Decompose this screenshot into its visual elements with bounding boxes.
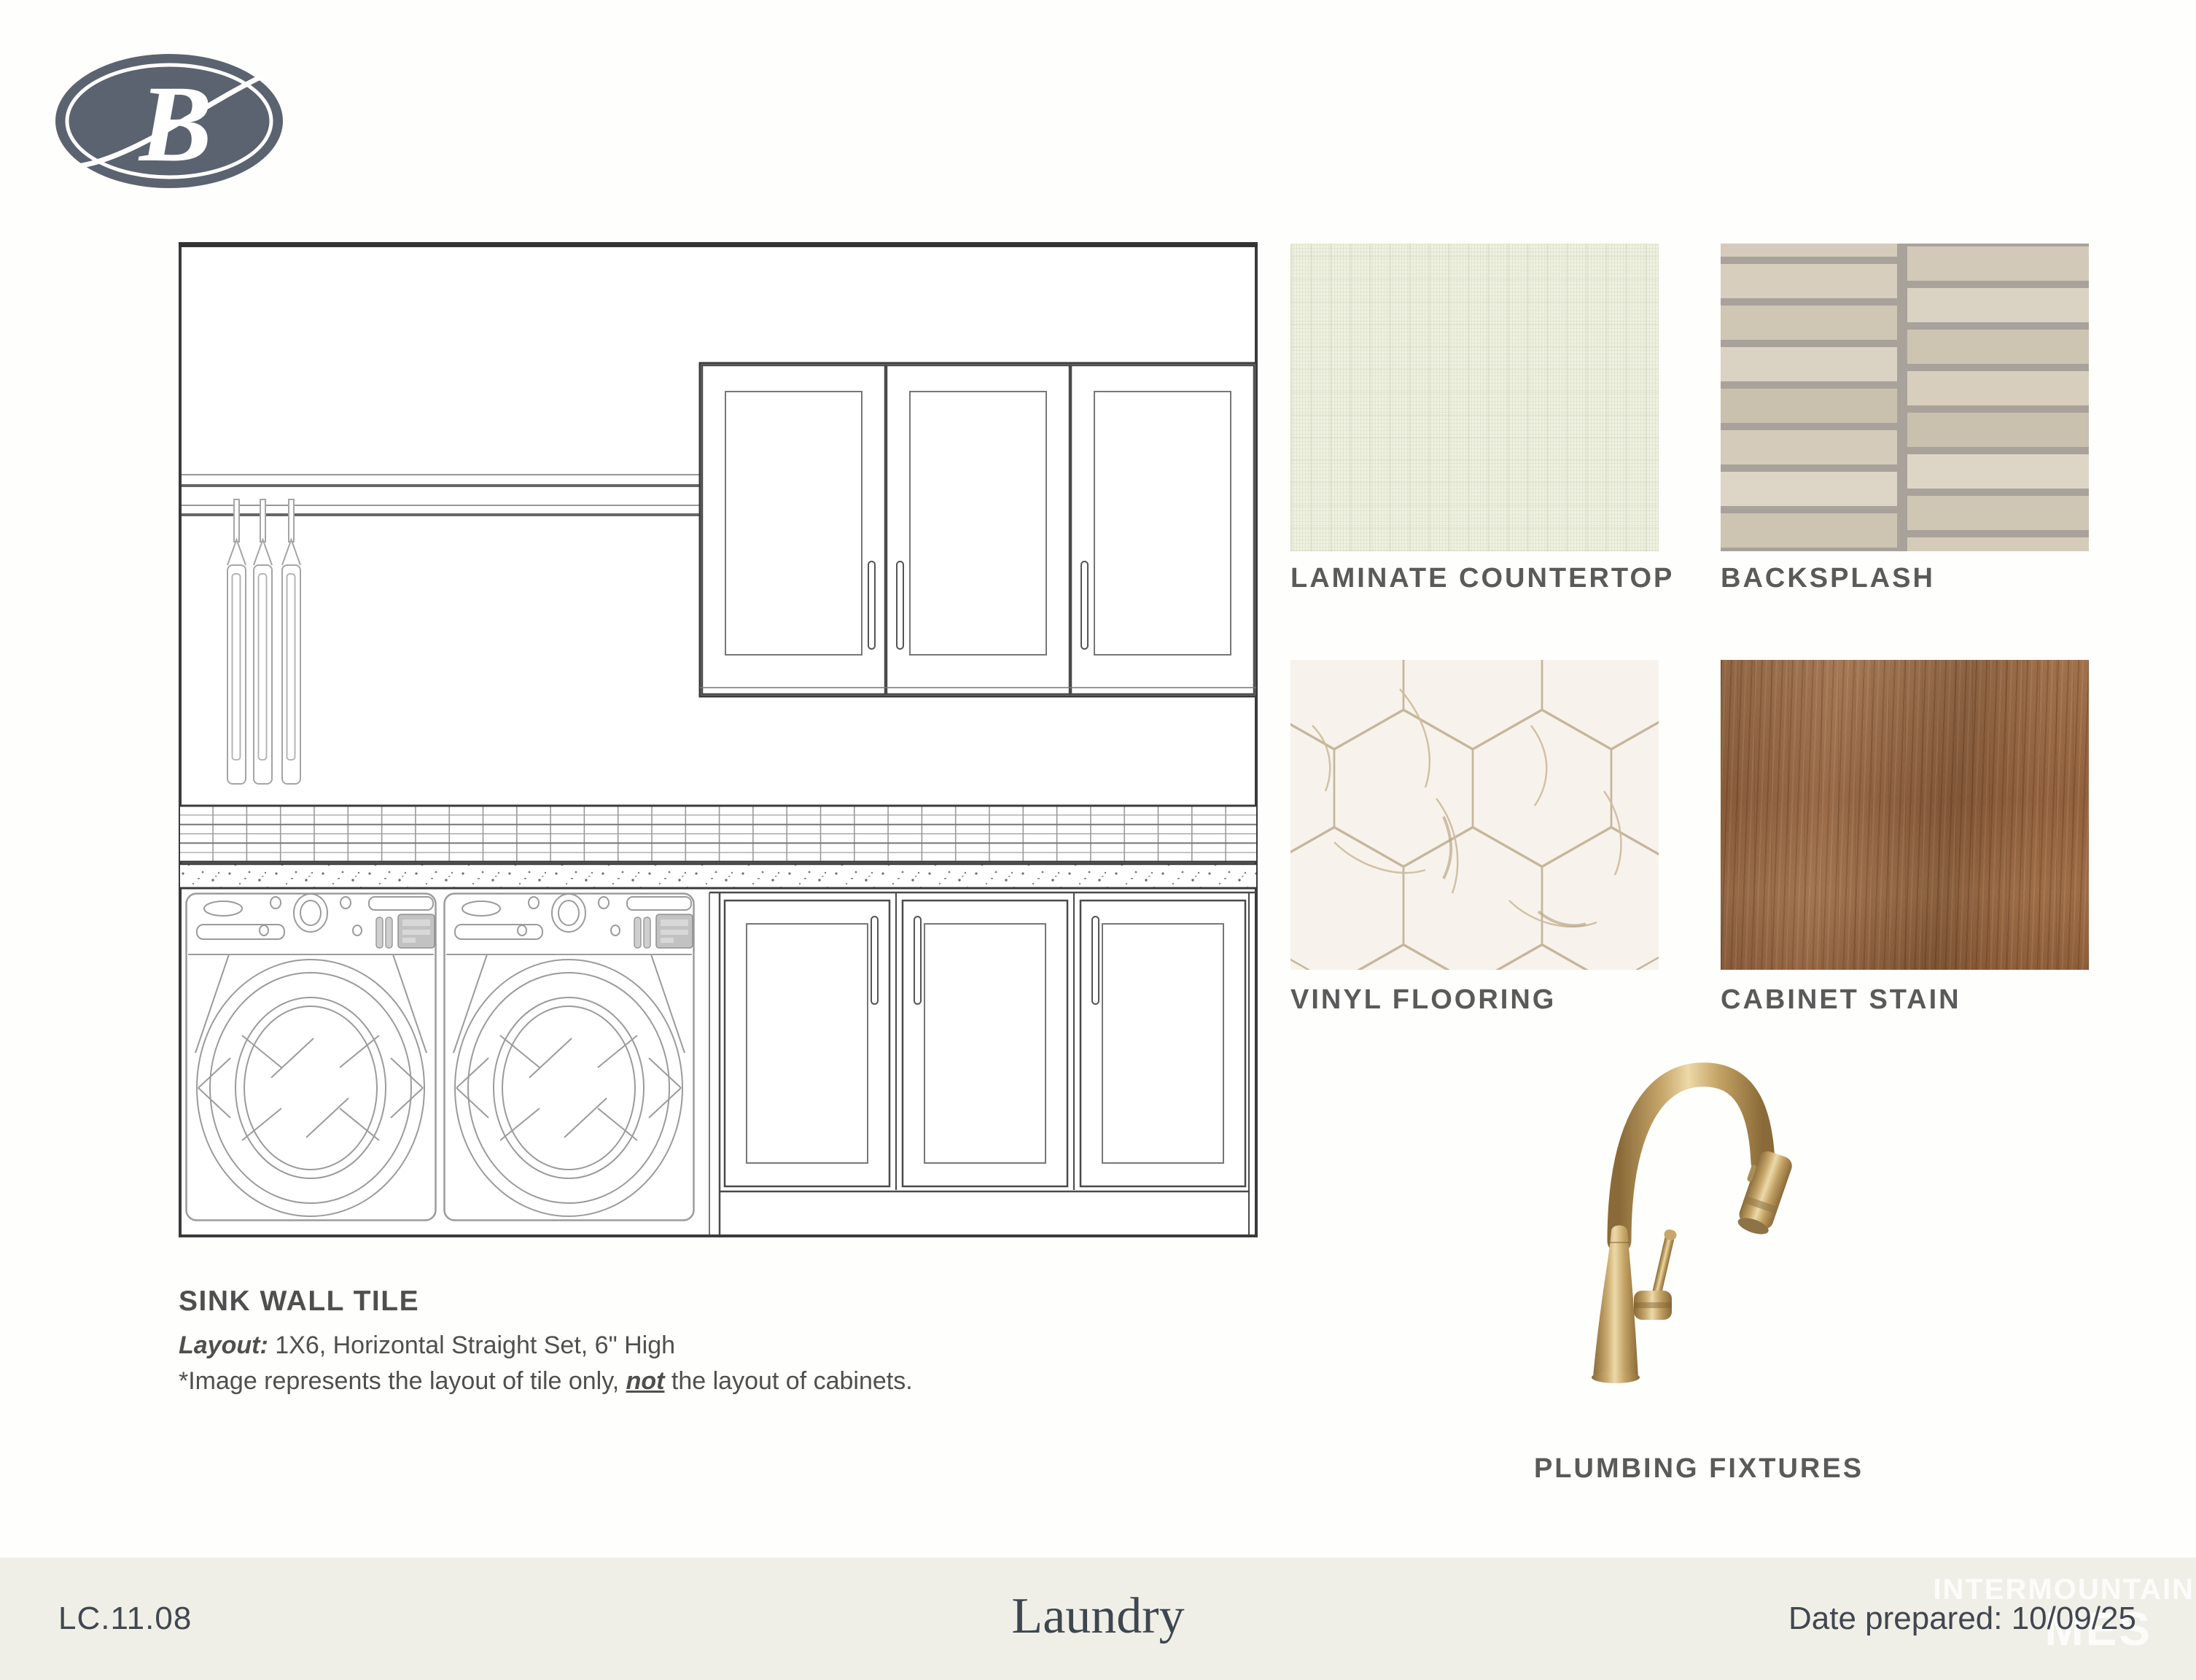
- faucet-image: [1520, 1059, 1885, 1401]
- faucet-sprayhead: [1731, 1148, 1794, 1238]
- faucet-handle: [1634, 1229, 1678, 1320]
- cabinet-stain-label: CABINET STAIN: [1721, 984, 1961, 1016]
- vinyl-flooring-label: VINYL FLOORING: [1290, 984, 1556, 1016]
- washer: [187, 894, 436, 1221]
- sheet-title: Laundry: [1011, 1587, 1184, 1646]
- footer-bar: INTERMOUNTAIN MES LC.11.08 Laundry Date …: [0, 1557, 2196, 1680]
- spec-sheet-page: B: [0, 0, 2196, 1680]
- dryer: [445, 894, 694, 1221]
- faucet-body: [1593, 1226, 1638, 1378]
- laminate-countertop-swatch: [1290, 244, 1659, 551]
- cabinet-stain-swatch: [1721, 660, 2089, 970]
- cabinet-handle: [1092, 917, 1099, 1004]
- cabinet-handle: [897, 561, 903, 649]
- vinyl-flooring-swatch: [1290, 660, 1659, 970]
- caption-note: *Image represents the layout of tile onl…: [179, 1364, 1214, 1399]
- tile-band: [179, 806, 1258, 862]
- cabinet-handle: [1081, 561, 1088, 649]
- plumbing-fixtures-label: PLUMBING FIXTURES: [1422, 1453, 1976, 1485]
- sheet-code: LC.11.08: [58, 1601, 192, 1637]
- backsplash-label: BACKSPLASH: [1721, 563, 1935, 594]
- countertop: [179, 864, 1258, 888]
- backsplash-swatch: [1721, 244, 2089, 551]
- laminate-countertop-label: LAMINATE COUNTERTOP: [1290, 563, 1674, 594]
- laundry-elevation-drawing: [179, 242, 1258, 1237]
- wall-cabinets: [700, 363, 1256, 696]
- hanging-rods: [227, 499, 300, 784]
- base-cabinets: [709, 892, 1256, 1234]
- caption-layout: Layout: 1X6, Horizontal Straight Set, 6"…: [179, 1328, 1214, 1364]
- cabinet-handle: [871, 917, 878, 1004]
- cabinet-handle: [914, 917, 921, 1004]
- caption-title: SINK WALL TILE: [179, 1286, 1214, 1318]
- cabinet-handle: [868, 561, 875, 649]
- logo-letter: B: [138, 63, 212, 184]
- drawing-caption: SINK WALL TILE Layout: 1X6, Horizontal S…: [179, 1286, 1214, 1400]
- date-prepared: Date prepared: 10/09/25: [1788, 1601, 2136, 1637]
- brand-logo: B: [53, 51, 285, 191]
